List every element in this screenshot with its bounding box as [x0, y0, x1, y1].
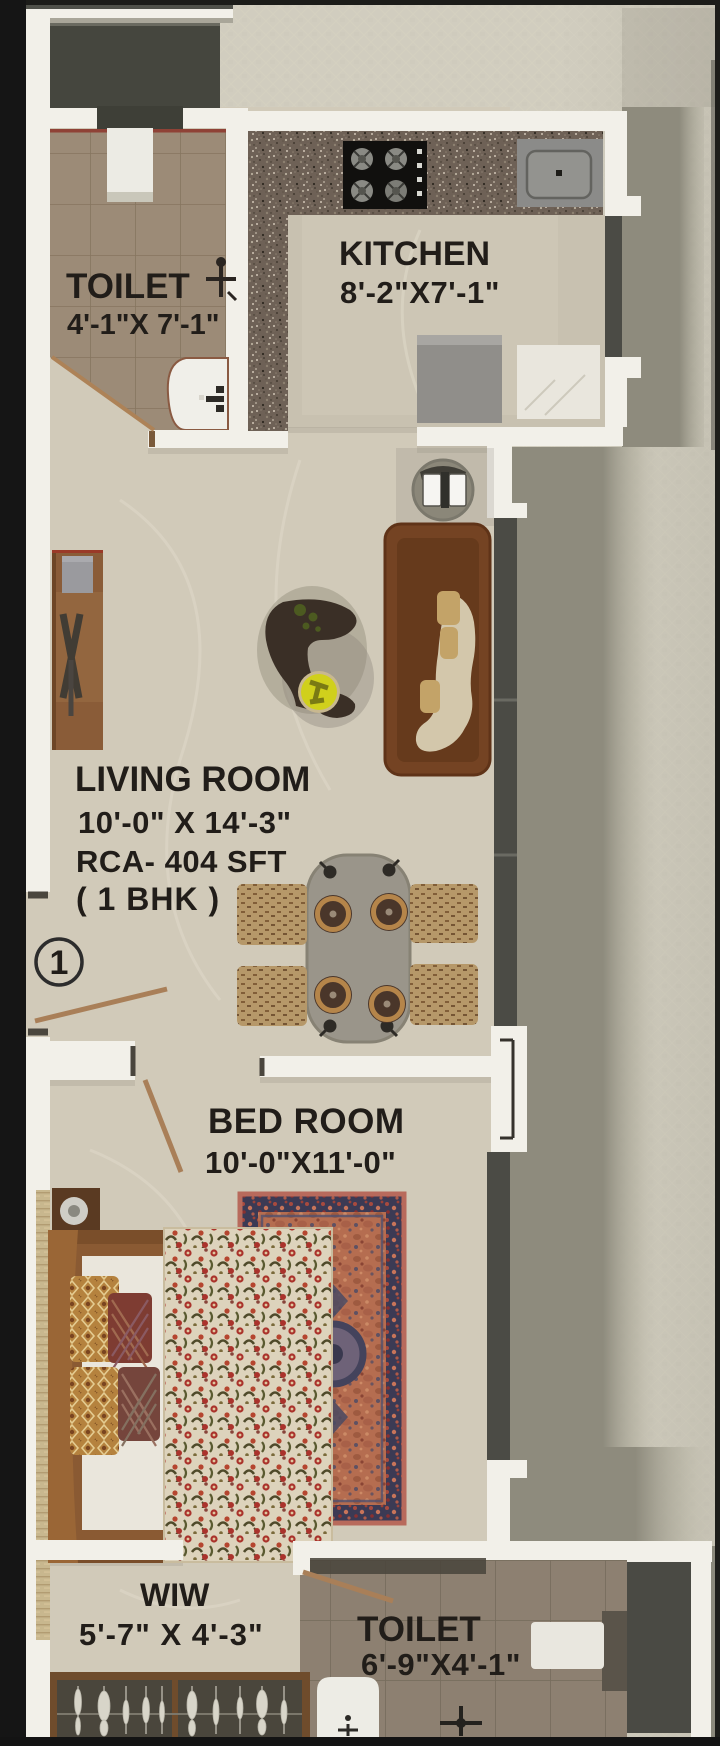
svg-text:5'-7" X 4'-3": 5'-7" X 4'-3": [79, 1617, 264, 1652]
svg-text:WIW: WIW: [140, 1577, 210, 1613]
svg-text:10'-0"X11'-0": 10'-0"X11'-0": [205, 1145, 396, 1180]
svg-text:1: 1: [50, 944, 69, 982]
svg-text:6'-9"X4'-1": 6'-9"X4'-1": [361, 1647, 521, 1682]
svg-text:10'-0" X 14'-3": 10'-0" X 14'-3": [78, 805, 292, 840]
svg-text:LIVING ROOM: LIVING ROOM: [75, 760, 310, 799]
svg-text:RCA- 404 SFT: RCA- 404 SFT: [76, 844, 287, 879]
svg-text:4'-1"X 7'-1": 4'-1"X 7'-1": [67, 309, 220, 341]
svg-text:BED ROOM: BED ROOM: [208, 1102, 405, 1141]
svg-text:( 1 BHK ): ( 1 BHK ): [76, 881, 220, 917]
svg-text:TOILET: TOILET: [357, 1610, 481, 1649]
svg-text:8'-2"X7'-1": 8'-2"X7'-1": [340, 275, 500, 310]
svg-text:TOILET: TOILET: [66, 267, 190, 306]
svg-text:KITCHEN: KITCHEN: [339, 235, 490, 273]
